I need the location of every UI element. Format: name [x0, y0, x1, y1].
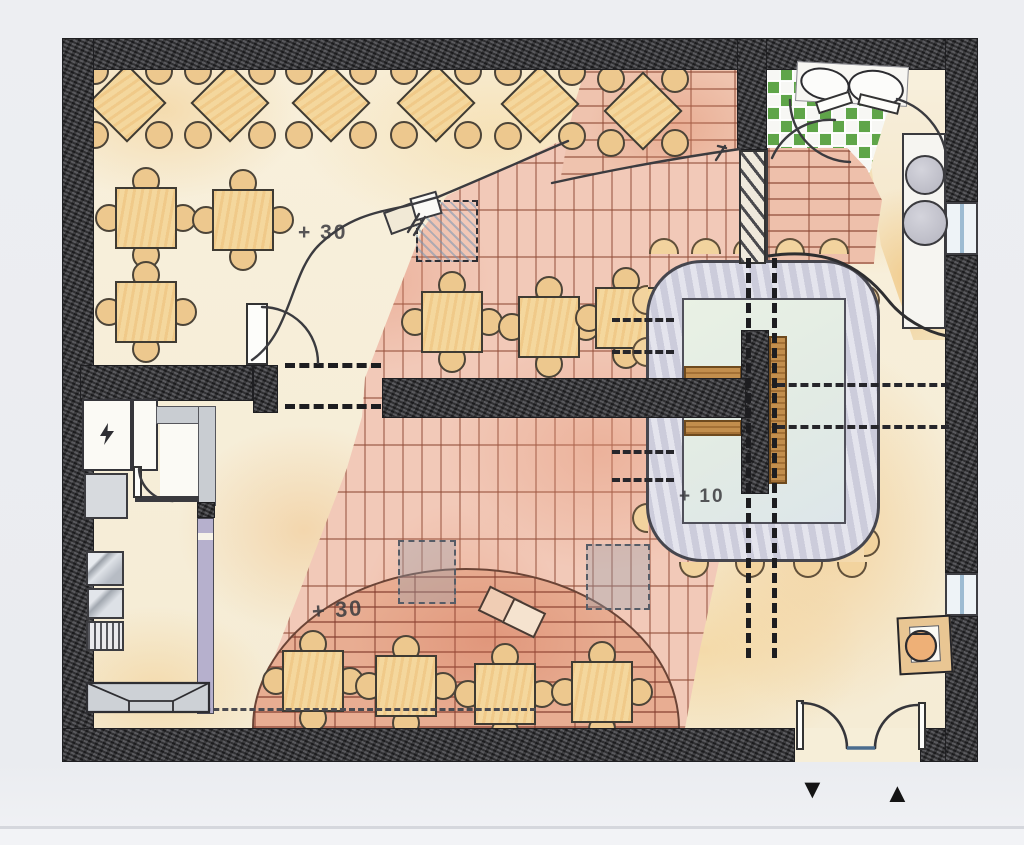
wall-bottom-left	[62, 728, 795, 762]
sink-basin-2	[902, 200, 948, 246]
hall-door-leaf	[246, 303, 268, 365]
service-cabinet	[84, 473, 128, 519]
dashed-stub-3	[612, 450, 674, 454]
sink-basin-1	[905, 155, 945, 195]
reception-desk-inner	[909, 625, 941, 663]
electrical-closet	[82, 399, 132, 471]
wall-right-middle	[945, 255, 978, 573]
entrance-door-leaf-left[interactable]	[796, 700, 804, 750]
dashed-axis-h2	[777, 425, 949, 429]
partition-purple	[197, 518, 214, 714]
wall-hatched-segment	[739, 150, 766, 264]
entrance-threshold-floor	[795, 728, 920, 762]
dashed-stub-4	[612, 478, 674, 482]
bar-stool	[691, 238, 721, 254]
fridge-1	[86, 551, 124, 586]
dashed-stub-1	[612, 318, 674, 322]
nook-floor	[160, 424, 198, 498]
bar-stool	[679, 562, 709, 578]
dashed-axis-h1	[777, 383, 949, 387]
dashed-axis-v1	[746, 258, 751, 658]
nook-door-leaf	[133, 466, 142, 498]
vent-grille	[86, 621, 124, 651]
bar-stool	[775, 238, 805, 254]
dashed-counter-line	[168, 708, 536, 711]
bar-back-counter-2	[684, 420, 742, 436]
entrance-door-leaf-right[interactable]	[918, 702, 926, 750]
dashed-axis-v2	[772, 258, 777, 658]
bar-stool	[837, 562, 867, 578]
wall-tiled-room-left	[737, 38, 767, 150]
floor-plan-canvas: + 30 + 30 + 10 ▼ ▲	[0, 0, 1024, 845]
wall-center	[382, 378, 746, 418]
lightning-icon	[95, 419, 119, 449]
dashed-opening-bottom	[285, 404, 381, 409]
stage-level-label: + 30	[311, 595, 364, 625]
terrace-level-label: + 30	[298, 221, 347, 245]
wall-service-left	[80, 365, 253, 401]
closet-shelf	[132, 399, 158, 471]
wall-service-left-end	[253, 365, 278, 413]
bar-stool	[819, 238, 849, 254]
scan-margin	[0, 829, 1024, 845]
window-right-upper	[945, 202, 978, 255]
nook-bottom-wall	[135, 496, 199, 502]
dashed-opening-top	[285, 363, 381, 368]
triangle-up-icon: ▲	[884, 780, 911, 807]
fridge-2	[87, 588, 124, 619]
reception-desk	[897, 615, 954, 676]
bar-stool	[649, 238, 679, 254]
triangle-down-icon: ▼	[799, 776, 826, 803]
partition-purple-gap	[198, 533, 213, 540]
dashed-stub-2	[612, 350, 674, 354]
bar-level-label: + 10	[679, 486, 725, 508]
partition-nook-right	[198, 406, 216, 506]
bar-stool	[793, 562, 823, 578]
partition-joint	[197, 502, 215, 518]
window-right-lower	[945, 573, 978, 616]
wall-right-upper	[945, 38, 978, 202]
